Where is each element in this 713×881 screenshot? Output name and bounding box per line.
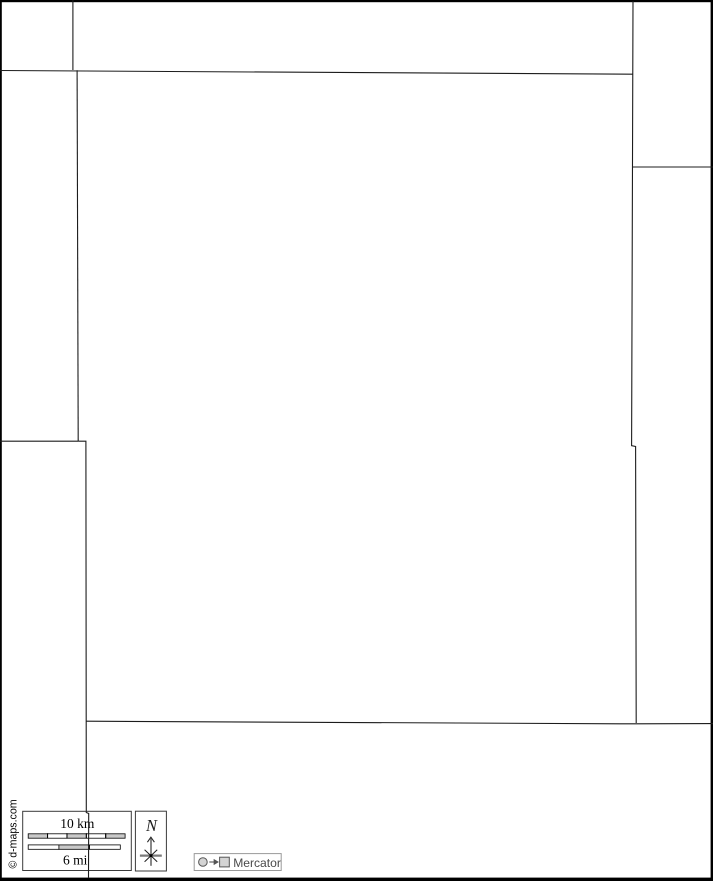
svg-text:6 mi: 6 mi — [63, 853, 88, 868]
svg-text:N: N — [145, 816, 158, 835]
svg-text:© d-maps.com: © d-maps.com — [8, 799, 20, 868]
svg-text:10 km: 10 km — [60, 816, 95, 831]
svg-text:Mercator: Mercator — [233, 856, 281, 870]
